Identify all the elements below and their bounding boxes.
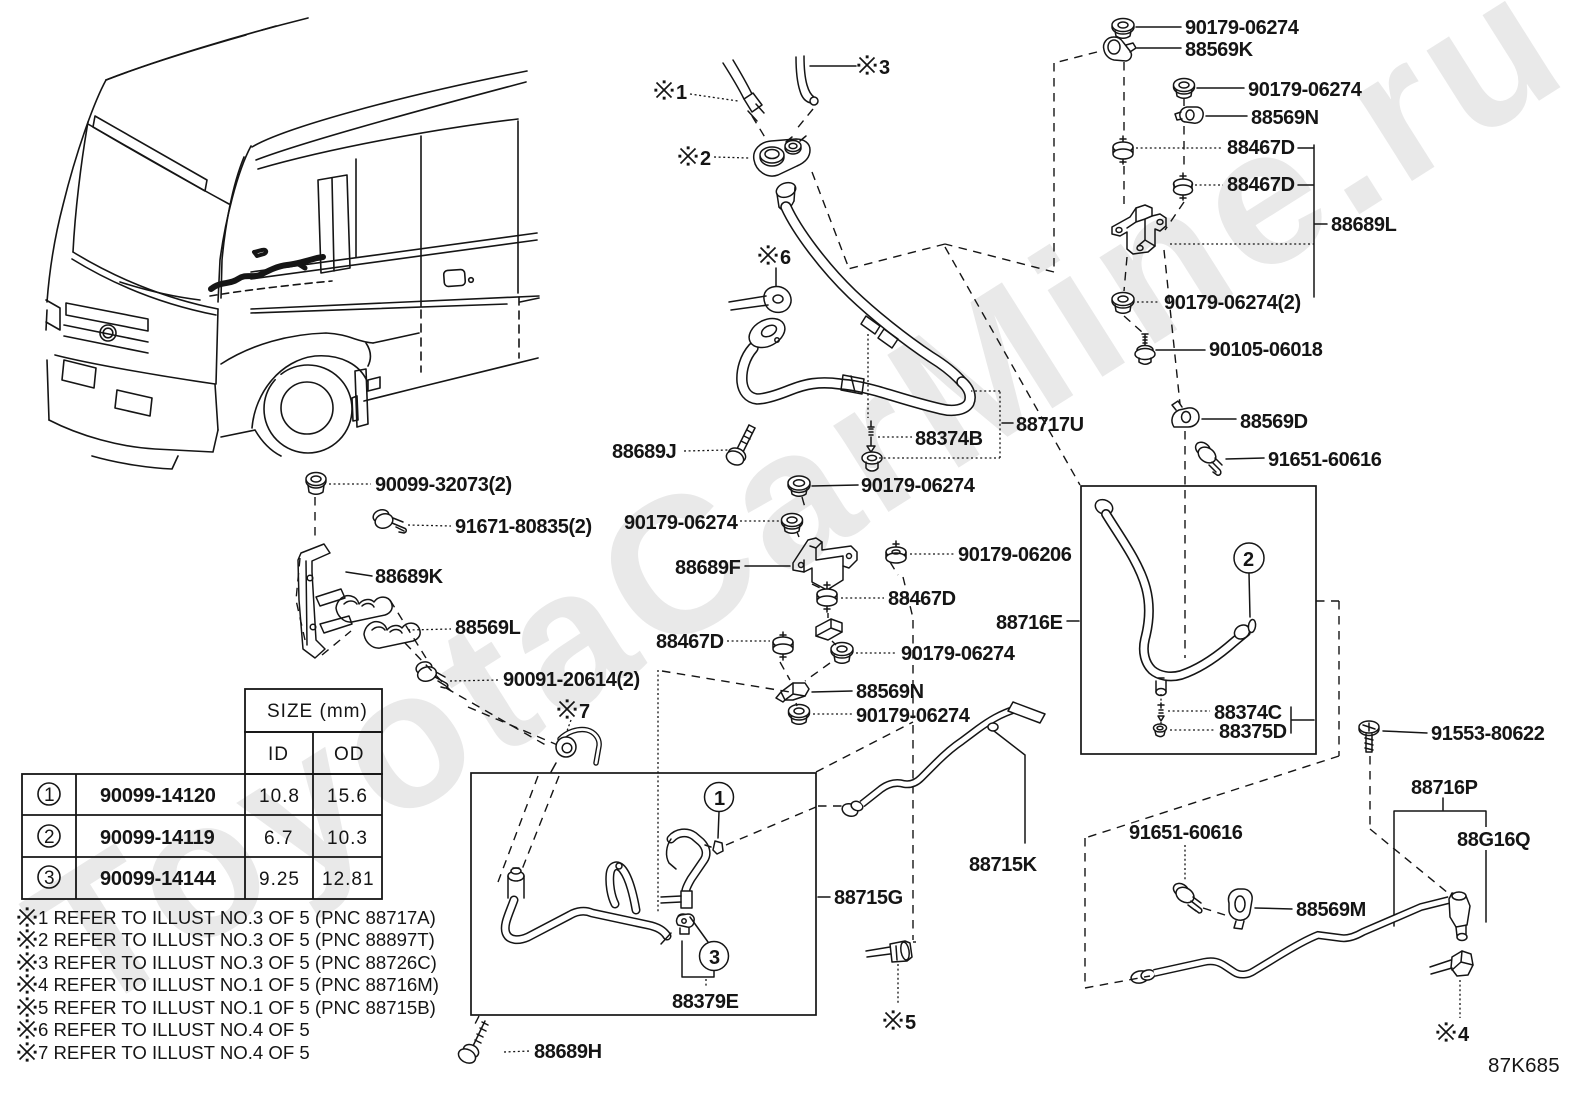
svg-text:88569M: 88569M <box>1296 899 1366 921</box>
svg-text:90099-14144: 90099-14144 <box>100 868 217 890</box>
svg-text:88467D: 88467D <box>1227 174 1295 196</box>
svg-text:12.81: 12.81 <box>322 869 375 890</box>
svg-text:1: 1 <box>676 82 687 104</box>
svg-text:10.3: 10.3 <box>327 828 368 849</box>
svg-text:90179-06274: 90179-06274 <box>1185 17 1300 39</box>
svg-text:SIZE (mm): SIZE (mm) <box>267 701 368 722</box>
svg-text:88569N: 88569N <box>1251 107 1319 129</box>
svg-text:90179-06274: 90179-06274 <box>624 512 739 534</box>
svg-text:88689J: 88689J <box>612 441 676 463</box>
svg-text:88689H: 88689H <box>534 1041 602 1063</box>
svg-text:88715G: 88715G <box>834 887 903 909</box>
svg-text:91651-60616: 91651-60616 <box>1268 449 1382 471</box>
svg-text:88715K: 88715K <box>969 854 1038 876</box>
svg-text:88374B: 88374B <box>915 428 983 450</box>
svg-text:91651-60616: 91651-60616 <box>1129 822 1243 844</box>
svg-text:7: 7 <box>579 701 590 723</box>
svg-text:6 REFER TO ILLUST NO.4 OF 5: 6 REFER TO ILLUST NO.4 OF 5 <box>38 1019 310 1040</box>
svg-text:88569K: 88569K <box>1185 39 1254 61</box>
svg-text:90099-32073(2): 90099-32073(2) <box>375 474 512 496</box>
svg-text:4: 4 <box>1458 1024 1470 1046</box>
svg-text:5 REFER TO ILLUST NO.1 OF 5 (P: 5 REFER TO ILLUST NO.1 OF 5 (PNC 88715B) <box>38 997 436 1018</box>
svg-text:3: 3 <box>44 868 56 889</box>
svg-text:9.25: 9.25 <box>259 869 300 890</box>
svg-text:90179-06274: 90179-06274 <box>1248 79 1363 101</box>
svg-text:88467D: 88467D <box>656 631 724 653</box>
svg-text:3: 3 <box>709 947 720 969</box>
svg-text:2: 2 <box>700 148 711 170</box>
svg-text:90179-06206: 90179-06206 <box>958 544 1072 566</box>
svg-text:90099-14120: 90099-14120 <box>100 785 216 807</box>
svg-text:1 REFER TO ILLUST NO.3 OF 5 (P: 1 REFER TO ILLUST NO.3 OF 5 (PNC 88717A) <box>38 907 436 928</box>
svg-text:88689L: 88689L <box>1331 214 1397 236</box>
svg-text:3 REFER TO ILLUST NO.3 OF 5 (P: 3 REFER TO ILLUST NO.3 OF 5 (PNC 88726C) <box>38 952 437 973</box>
svg-text:15.6: 15.6 <box>327 786 368 807</box>
svg-text:5: 5 <box>905 1012 916 1034</box>
svg-text:6: 6 <box>780 247 791 269</box>
svg-text:87K685: 87K685 <box>1488 1054 1560 1077</box>
svg-text:ID: ID <box>268 744 289 765</box>
svg-text:2 REFER TO ILLUST NO.3 OF 5 (P: 2 REFER TO ILLUST NO.3 OF 5 (PNC 88897T) <box>38 929 435 950</box>
svg-text:88716E: 88716E <box>996 612 1063 634</box>
svg-text:1: 1 <box>44 785 56 806</box>
svg-text:88689K: 88689K <box>375 566 444 588</box>
svg-text:4 REFER TO ILLUST NO.1 OF 5 (P: 4 REFER TO ILLUST NO.1 OF 5 (PNC 88716M) <box>38 974 439 995</box>
svg-text:91553-80622: 91553-80622 <box>1431 723 1545 745</box>
svg-text:3: 3 <box>879 57 890 79</box>
svg-text:91671-80835(2): 91671-80835(2) <box>455 516 592 538</box>
svg-text:90179-06274(2): 90179-06274(2) <box>1164 292 1301 314</box>
svg-text:88G16Q: 88G16Q <box>1457 829 1530 851</box>
svg-text:88569L: 88569L <box>455 617 521 639</box>
svg-text:88689F: 88689F <box>675 557 741 579</box>
svg-text:90179-06274: 90179-06274 <box>861 475 976 497</box>
svg-text:6.7: 6.7 <box>264 828 293 849</box>
svg-text:10.8: 10.8 <box>259 786 300 807</box>
svg-text:90179-06274: 90179-06274 <box>901 643 1016 665</box>
svg-text:88379E: 88379E <box>672 991 739 1013</box>
svg-text:90099-14119: 90099-14119 <box>100 827 215 849</box>
svg-text:90091-20614(2): 90091-20614(2) <box>503 669 640 691</box>
svg-text:2: 2 <box>44 827 56 848</box>
svg-text:1: 1 <box>714 788 725 810</box>
svg-text:88569D: 88569D <box>1240 411 1308 433</box>
svg-text:90105-06018: 90105-06018 <box>1209 339 1323 361</box>
svg-text:88716P: 88716P <box>1411 777 1478 799</box>
svg-text:88467D: 88467D <box>1227 137 1295 159</box>
svg-text:88375D: 88375D <box>1219 721 1287 743</box>
svg-text:88467D: 88467D <box>888 588 956 610</box>
svg-text:7 REFER TO ILLUST NO.4 OF 5: 7 REFER TO ILLUST NO.4 OF 5 <box>38 1042 310 1063</box>
svg-text:2: 2 <box>1243 549 1254 571</box>
svg-text:OD: OD <box>334 744 365 765</box>
